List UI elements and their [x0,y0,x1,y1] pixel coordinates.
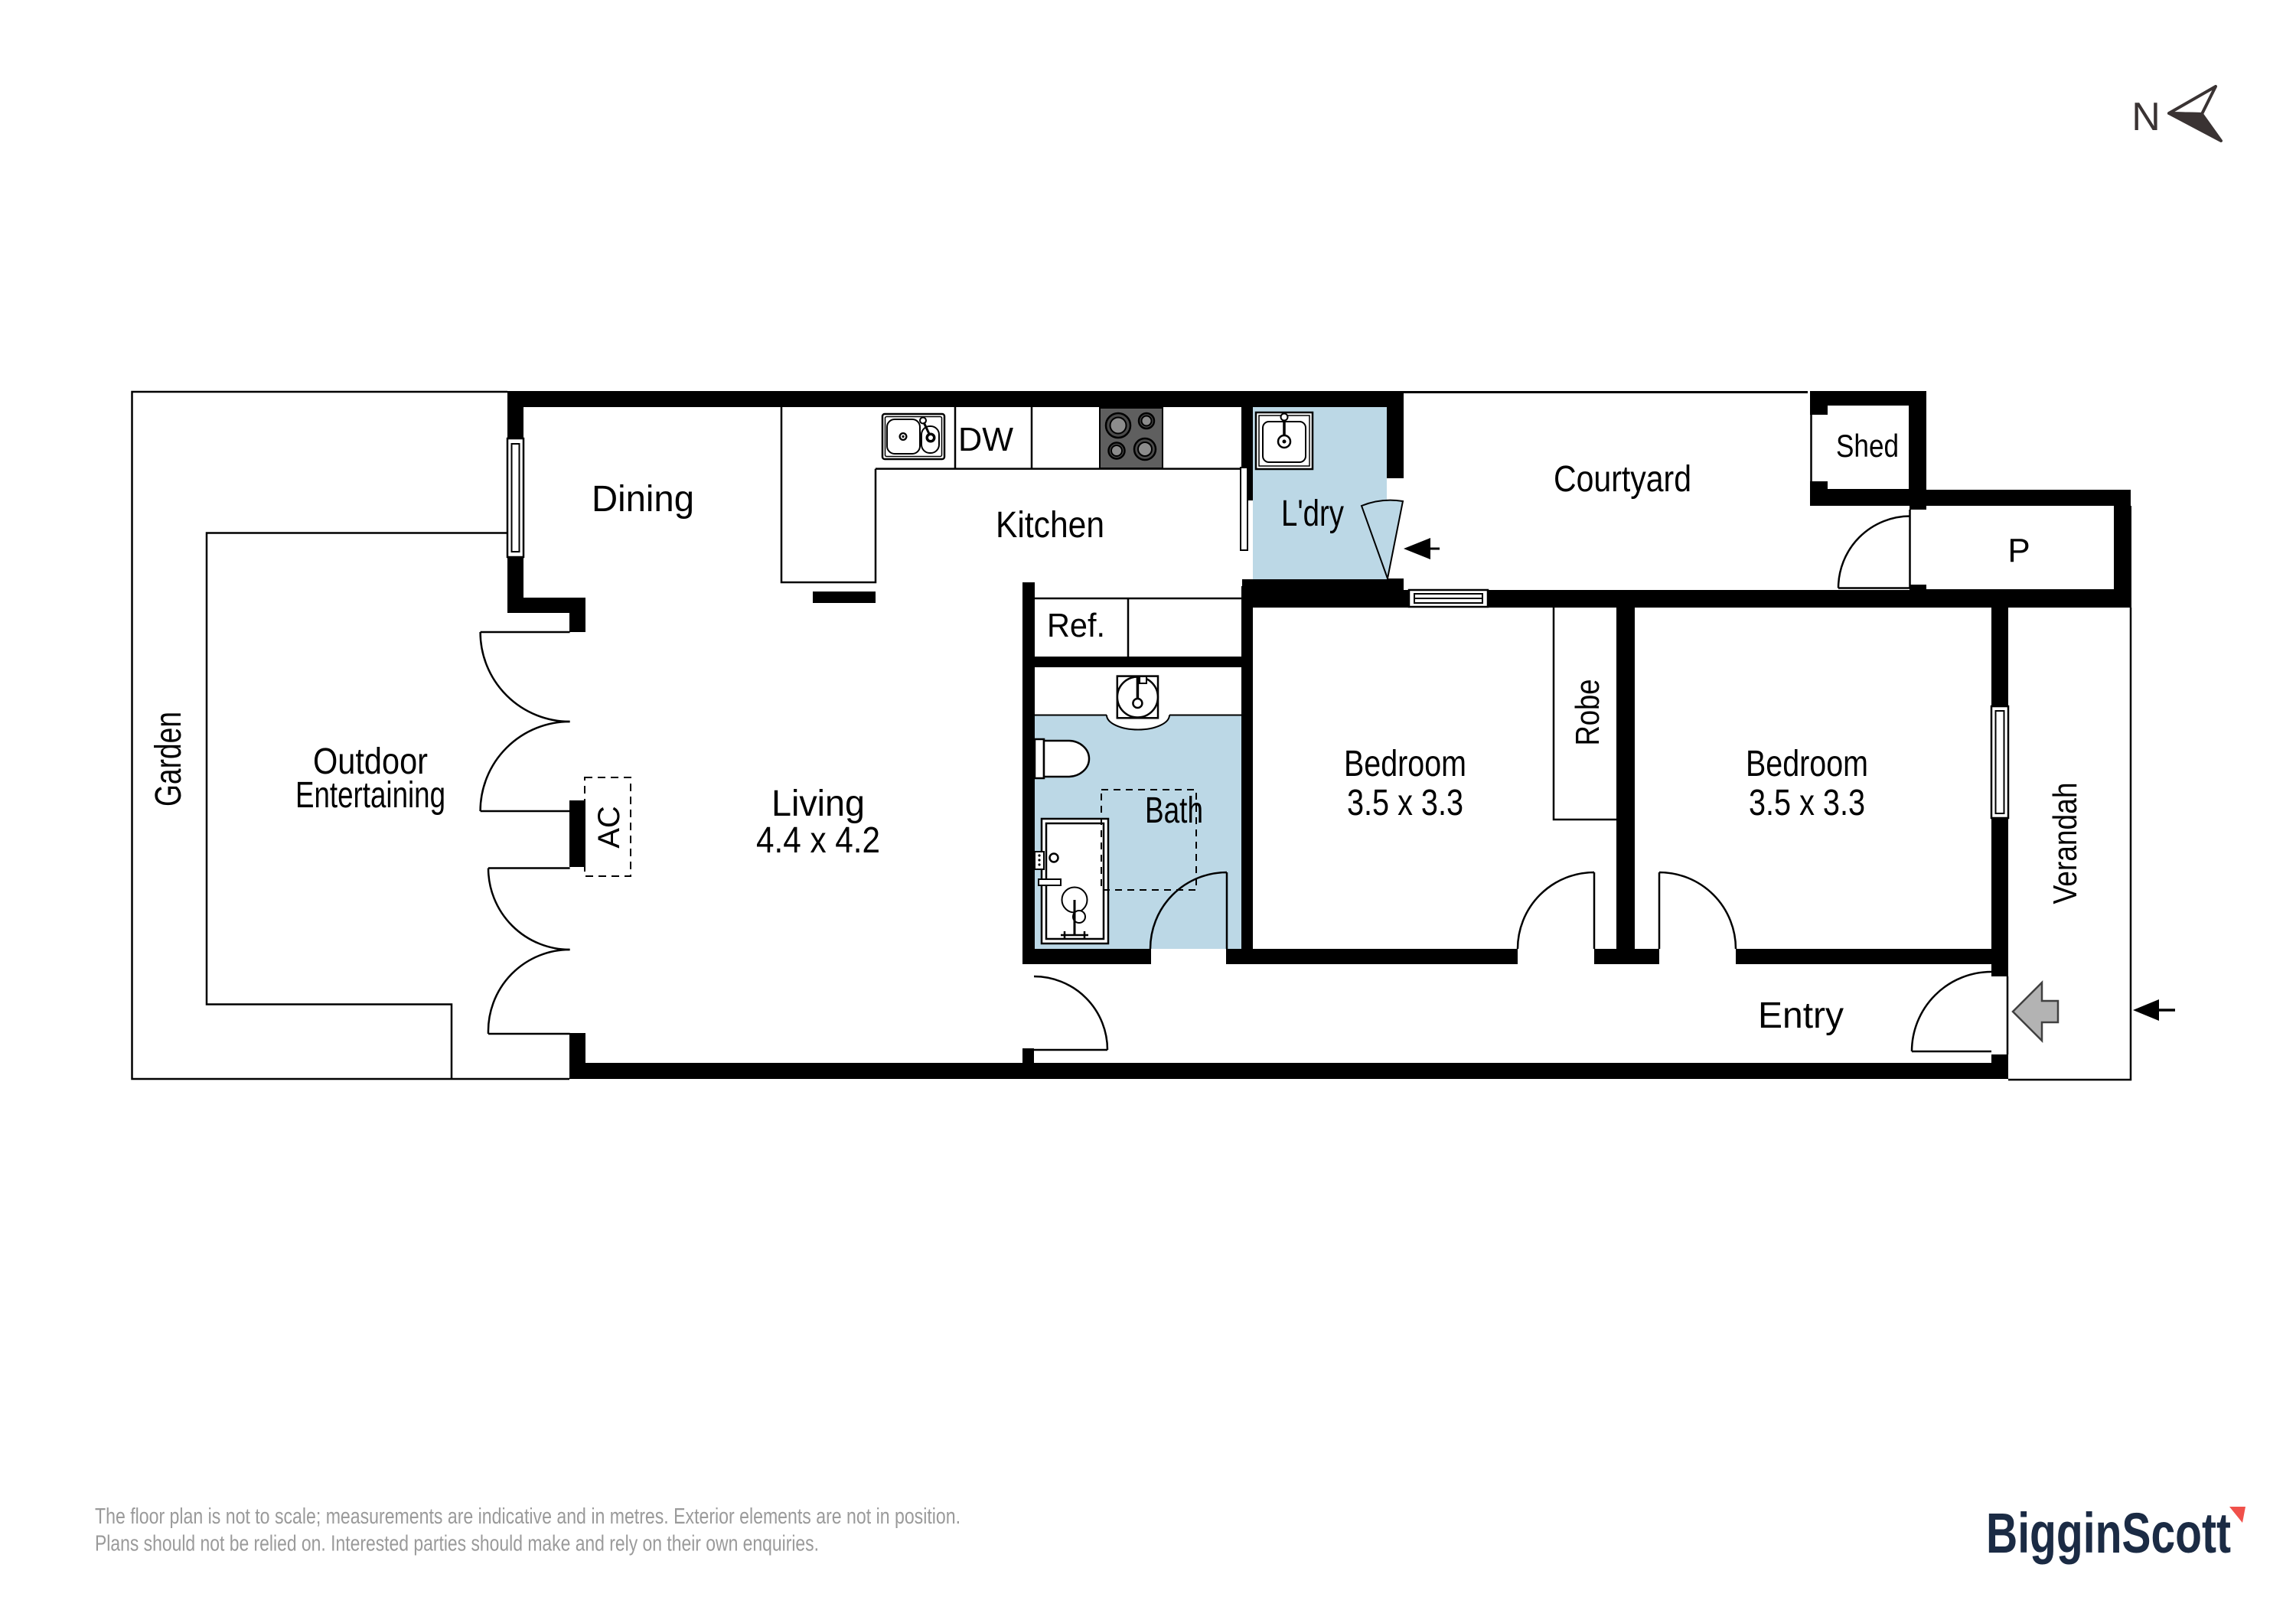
svg-text:Bedroom: Bedroom [1344,744,1466,784]
svg-text:Ref.: Ref. [1047,607,1105,644]
svg-text:3.5 x 3.3: 3.5 x 3.3 [1347,783,1463,823]
svg-text:AC: AC [592,806,626,849]
svg-text:Shed: Shed [1836,428,1899,464]
svg-text:Courtyard: Courtyard [1554,459,1691,500]
svg-text:P: P [2007,532,2030,569]
svg-text:L'dry: L'dry [1281,494,1344,534]
svg-text:Robe: Robe [1569,680,1606,746]
svg-text:4.4 x 4.2: 4.4 x 4.2 [756,820,880,861]
svg-text:Bedroom: Bedroom [1746,744,1868,784]
svg-text:Garden: Garden [148,712,189,807]
svg-text:The floor plan is not to scale: The floor plan is not to scale; measurem… [95,1504,960,1529]
svg-text:Living: Living [771,784,865,824]
svg-text:Entry: Entry [1758,996,1844,1036]
svg-text:Plans should not be relied on.: Plans should not be relied on. Intereste… [95,1532,819,1556]
svg-text:Kitchen: Kitchen [996,505,1104,546]
svg-text:3.5 x 3.3: 3.5 x 3.3 [1749,783,1865,823]
svg-text:BigginScott: BigginScott [1986,1501,2231,1565]
svg-text:Verandah: Verandah [2047,783,2084,904]
svg-text:Dining: Dining [592,479,694,520]
svg-text:DW: DW [958,421,1013,458]
svg-text:Bath: Bath [1145,790,1203,831]
svg-text:Entertaining: Entertaining [295,775,445,816]
svg-text:N: N [2131,95,2161,139]
